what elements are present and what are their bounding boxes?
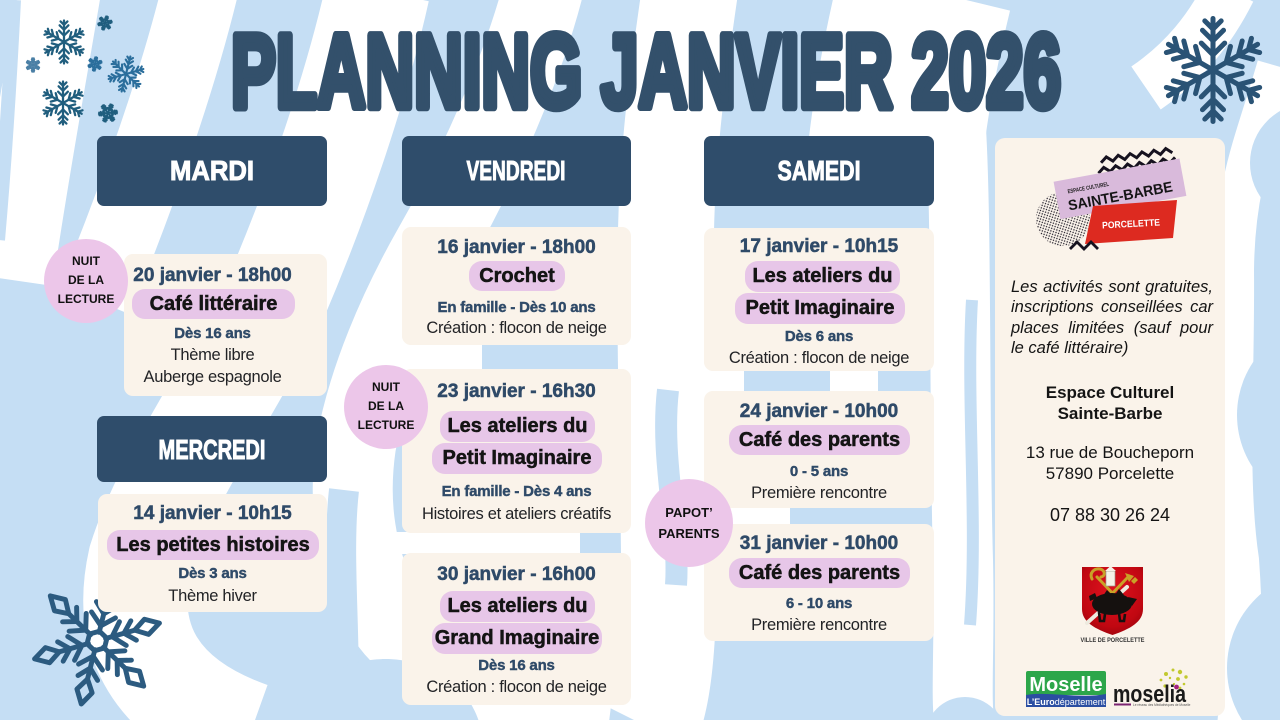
svg-text:Moselle: Moselle [1029,674,1102,696]
svg-text:VENDREDI: VENDREDI [467,155,566,186]
svg-text:SAMEDI: SAMEDI [778,155,861,186]
svg-text:MARDI: MARDI [170,155,254,186]
svg-text:PLANNING JANVIER 2026: PLANNING JANVIER 2026 [231,14,1061,130]
svg-text:L’Eurodépartement: L’Eurodépartement [1027,697,1106,707]
svg-text:Le réseau des Médiathèques de: Le réseau des Médiathèques de Moselle [1133,703,1191,707]
svg-text:VILLE DE PORCELETTE: VILLE DE PORCELETTE [1081,637,1146,644]
svg-text:MERCREDI: MERCREDI [159,434,266,465]
